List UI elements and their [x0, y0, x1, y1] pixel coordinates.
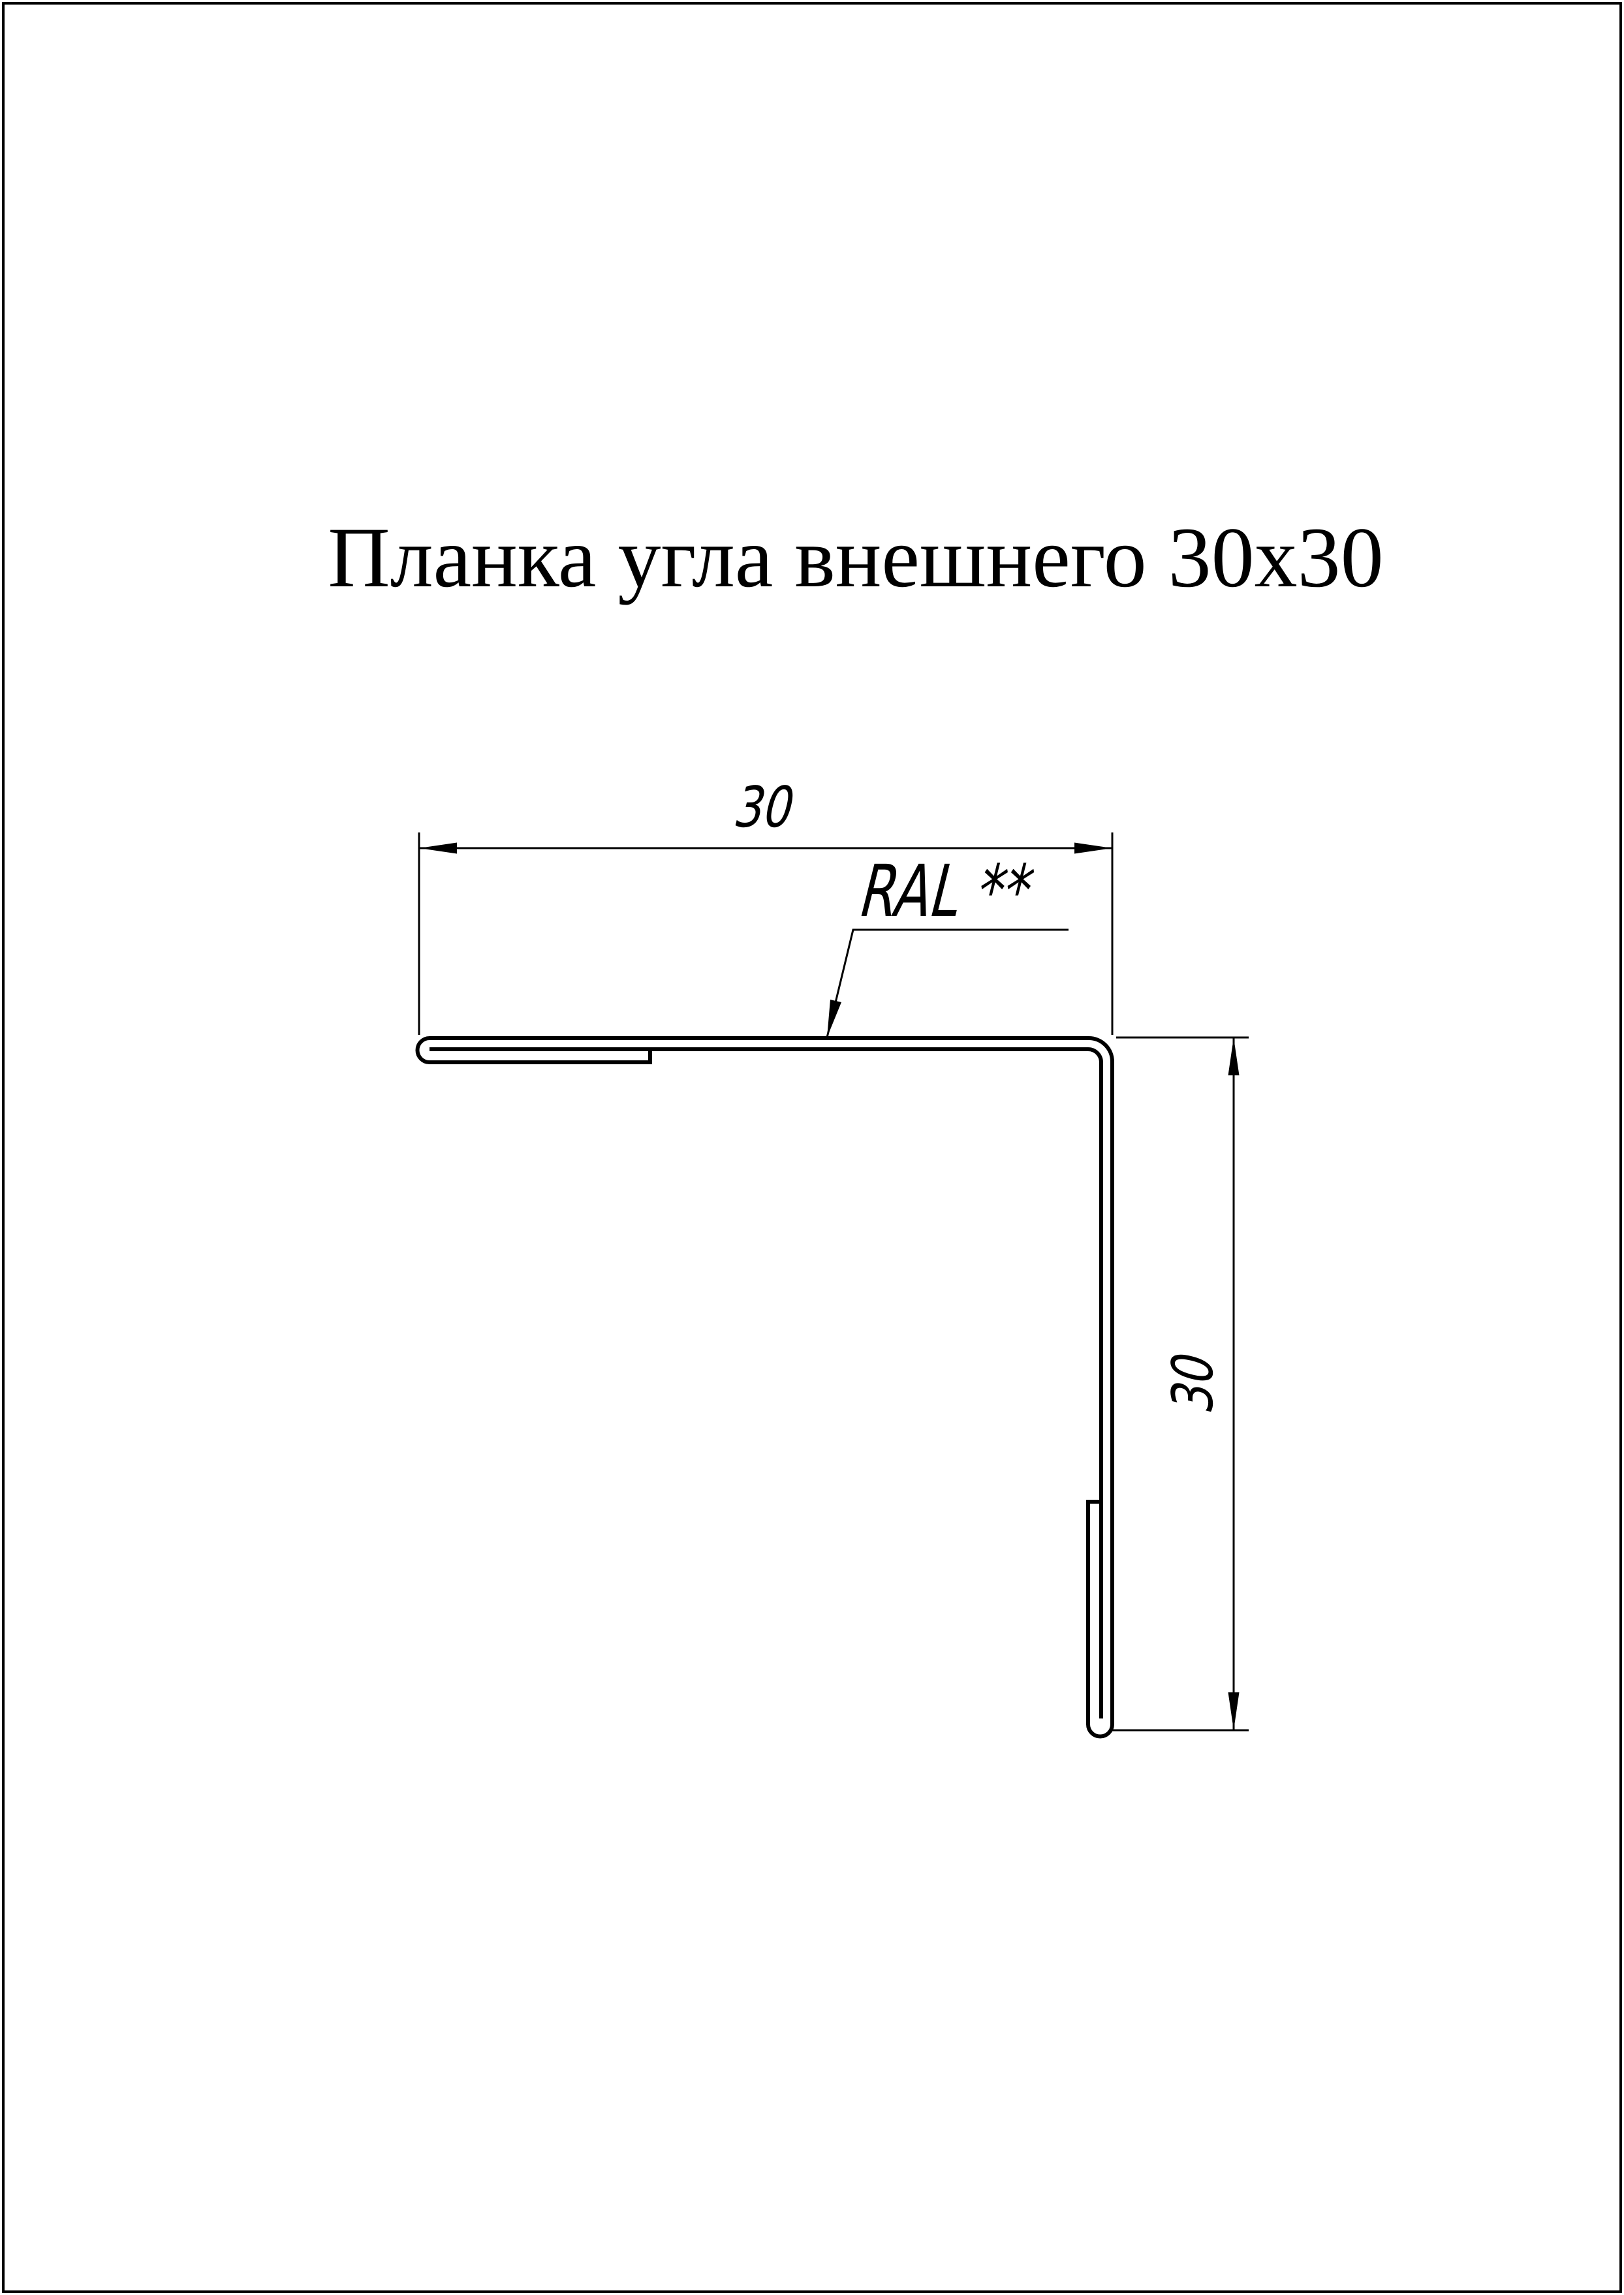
corner-strip-profile — [418, 1038, 1113, 1737]
profile-outer-surface — [429, 1038, 1112, 1737]
profile-inner-surface — [429, 1049, 1101, 1718]
dim-h-arrow-left-icon — [419, 843, 457, 854]
ral-leader-line — [827, 930, 1069, 1037]
dim-h-arrow-right-icon — [1074, 843, 1112, 854]
arrowheads — [419, 843, 1240, 1731]
technical-drawing — [0, 0, 1624, 2295]
dim-v-arrow-bottom-icon — [1228, 1692, 1240, 1730]
drawing-title: Планка угла внешнего 30х30 — [328, 514, 1383, 601]
drawing-sheet: Планка угла внешнего 30х30 30 30 RAL ** — [0, 0, 1624, 2295]
dimension-lines — [419, 832, 1249, 1730]
ral-leader-arrow-icon — [827, 1000, 841, 1037]
dim-v-arrow-top-icon — [1228, 1037, 1240, 1075]
ral-color-label: RAL ** — [854, 855, 1040, 927]
